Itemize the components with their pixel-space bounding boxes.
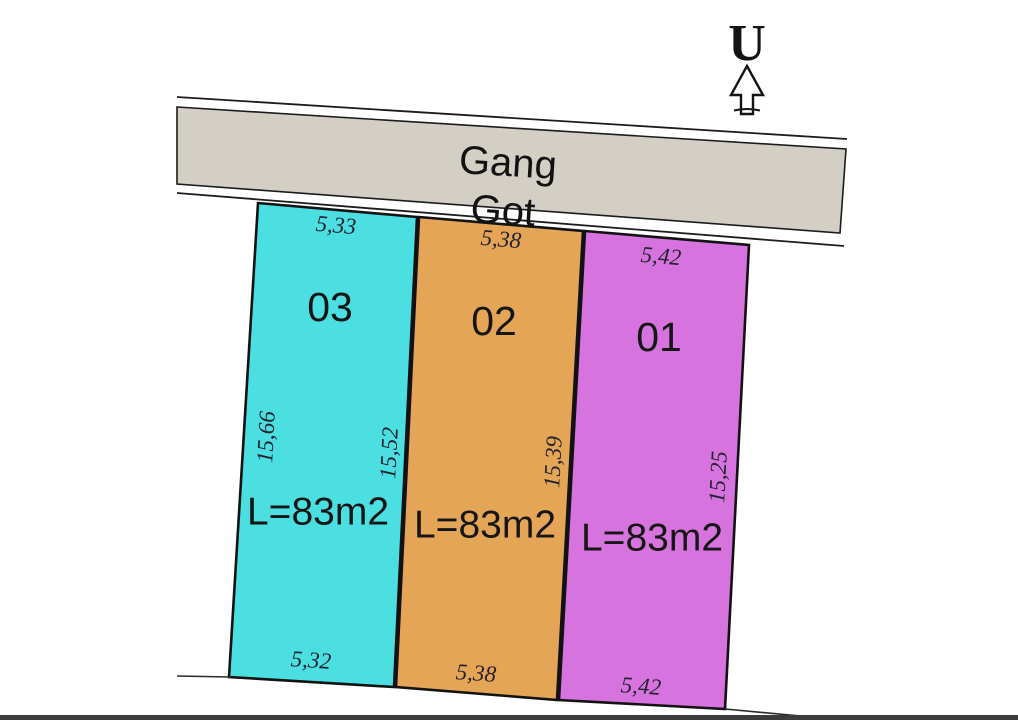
north-arrow-icon xyxy=(731,66,763,114)
plot-02-length-right-label: 15,39 xyxy=(539,435,567,488)
plot-02-width-top-label: 5,38 xyxy=(480,225,523,253)
plot-01-area-label: L=83m2 xyxy=(581,517,723,560)
plot-03-width-top-label: 5,33 xyxy=(315,211,357,239)
plot-03-id-label: 03 xyxy=(307,284,353,330)
plot-02-width-bottom-label: 5,38 xyxy=(455,659,497,687)
road-name-line1: Gang xyxy=(458,138,558,188)
site-plan-canvas: Gang Got 5,33 03 15,66 15,52 L=83m2 5,32… xyxy=(0,0,1018,720)
plot-03-length-left-label: 15,66 xyxy=(252,410,280,463)
plot-01-length-right-label: 15,25 xyxy=(704,451,732,504)
plot-01-width-top-label: 5,42 xyxy=(640,242,682,270)
boundary-line-left-extension xyxy=(177,676,231,677)
plot-03-area-label: L=83m2 xyxy=(247,491,389,534)
plot-02-area-label: L=83m2 xyxy=(414,504,556,547)
plot-03-length-right-label: 15,52 xyxy=(375,427,403,480)
north-label: U xyxy=(728,15,766,72)
plot-03-width-bottom-label: 5,32 xyxy=(290,646,332,674)
north-indicator: U xyxy=(728,15,766,114)
plot-01-width-bottom-label: 5,42 xyxy=(620,672,662,700)
plot-02-id-label: 02 xyxy=(471,298,517,344)
plot-01-id-label: 01 xyxy=(636,314,682,360)
bottom-edge-bar xyxy=(0,715,1018,720)
site-plan-drawing: Gang Got 5,33 03 15,66 15,52 L=83m2 5,32… xyxy=(0,0,1018,720)
